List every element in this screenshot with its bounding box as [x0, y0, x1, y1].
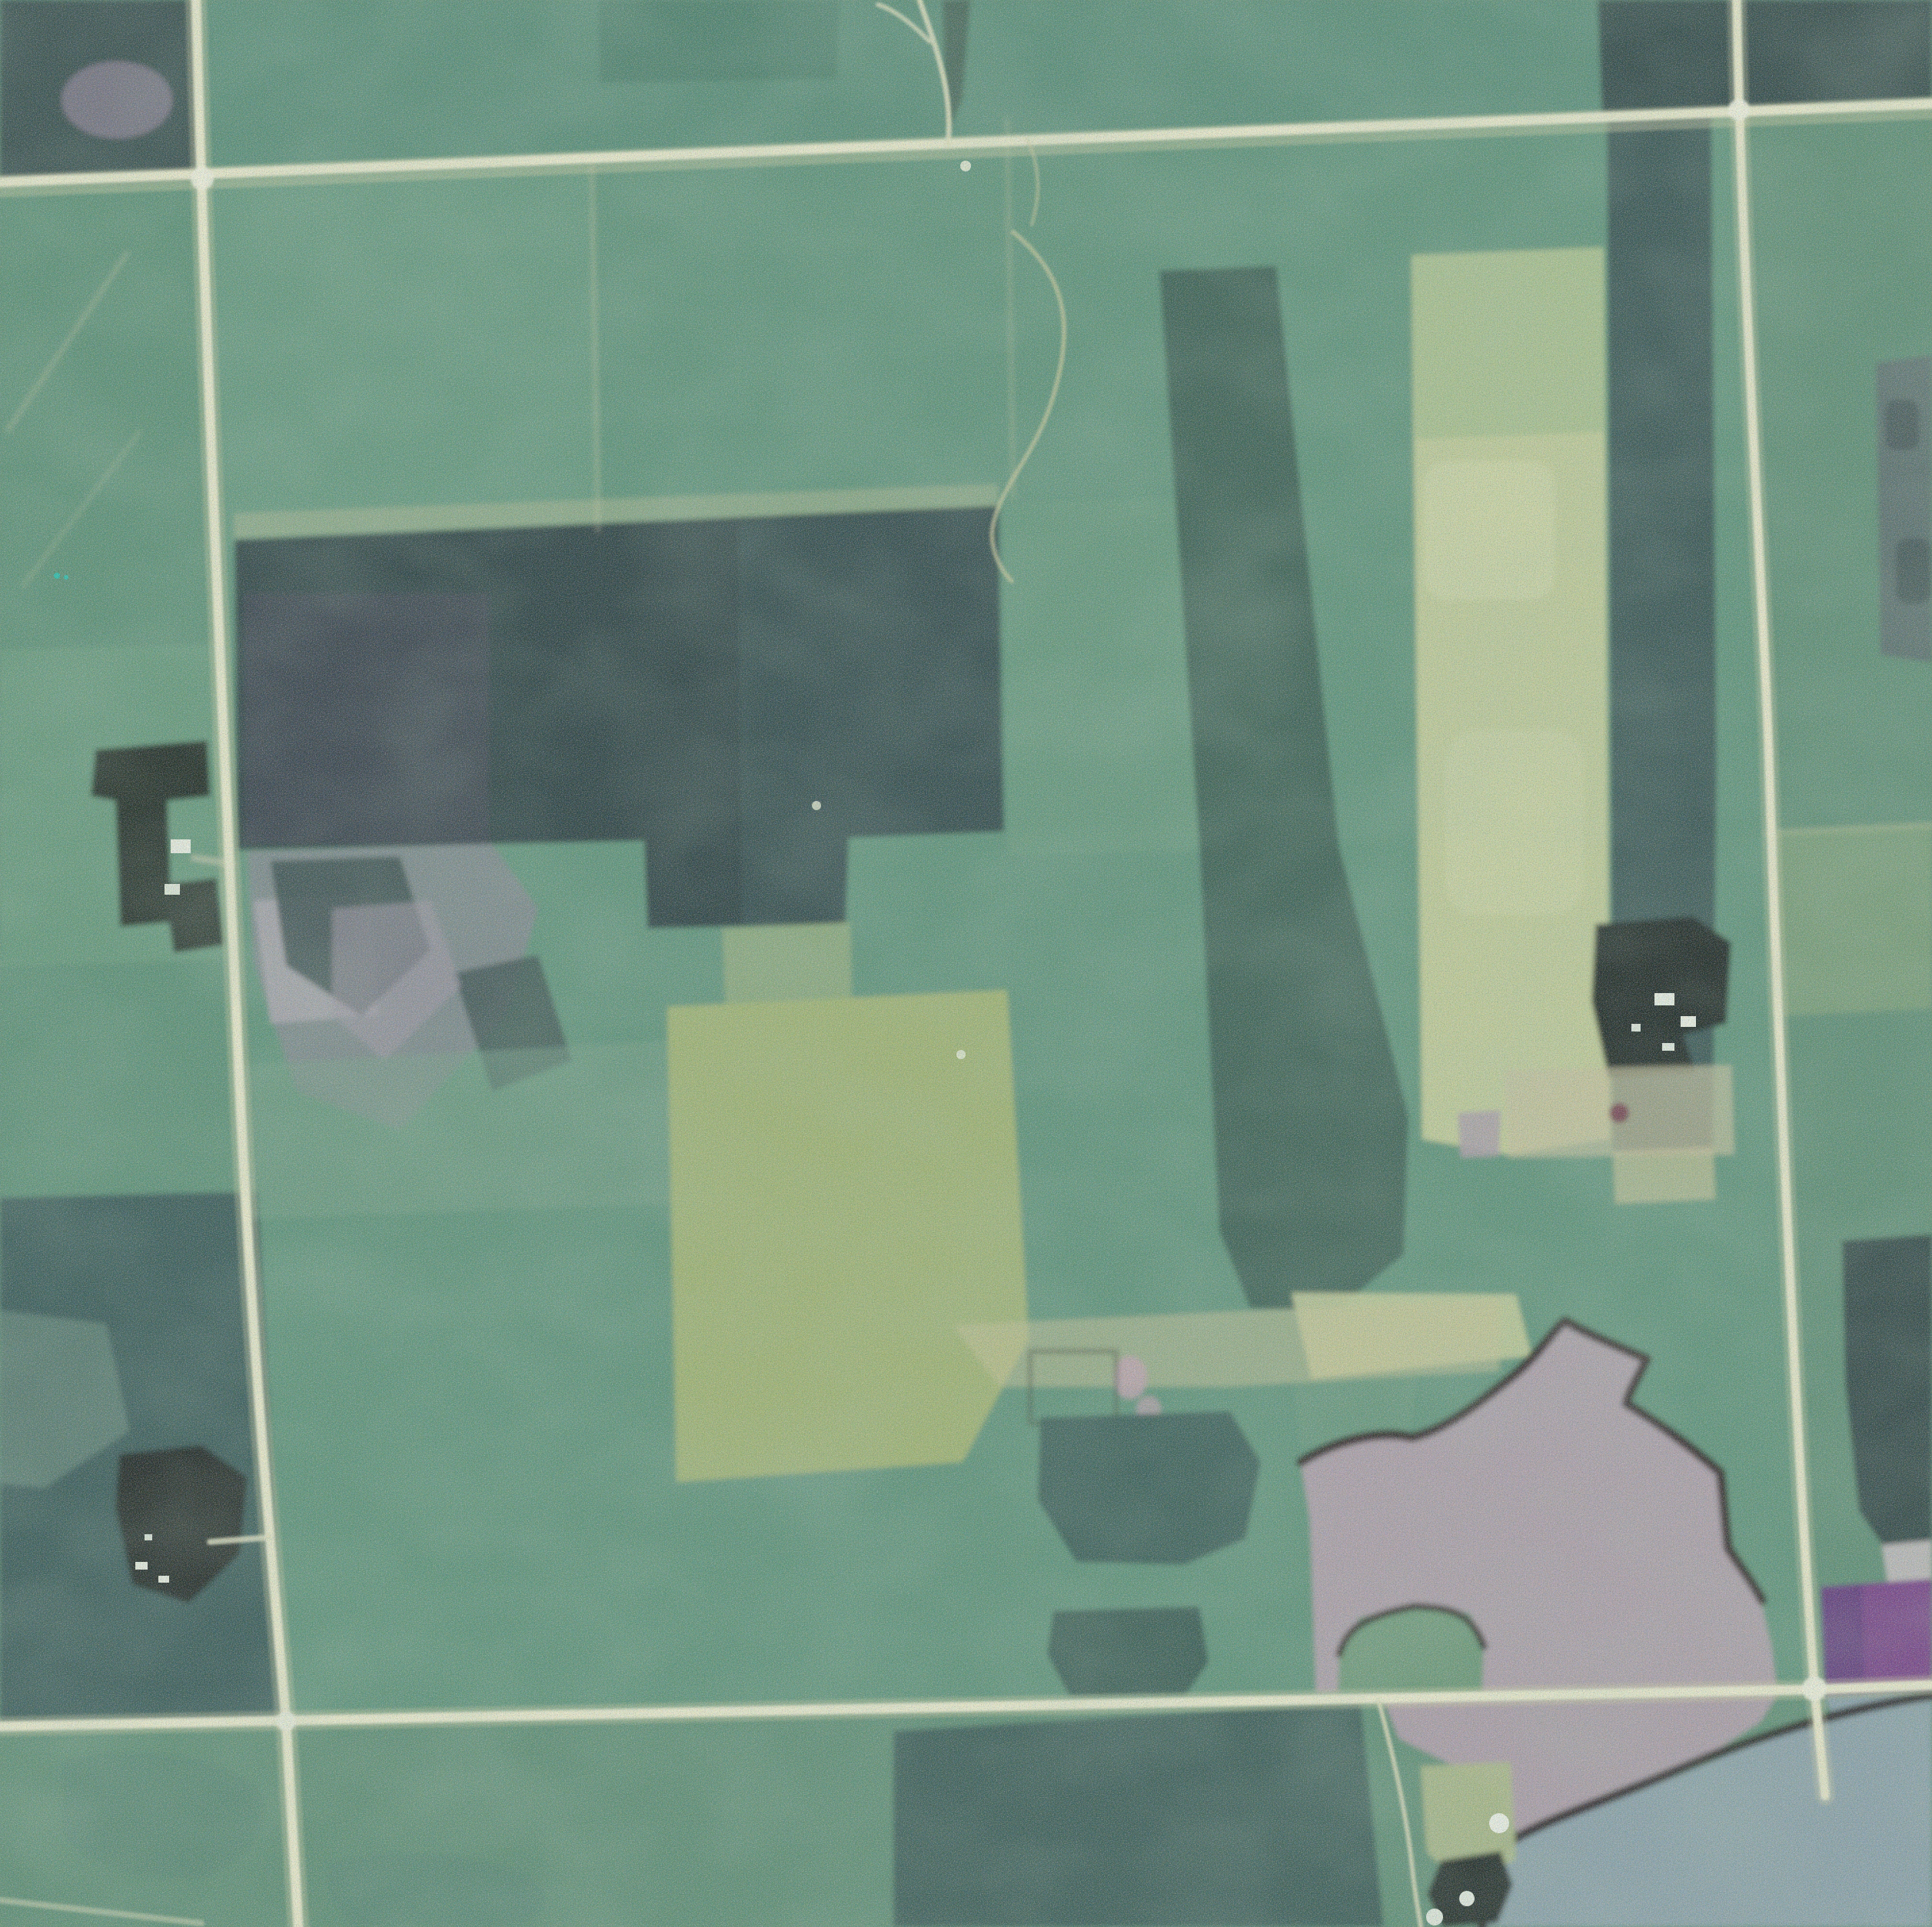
aerial-photo-stage	[0, 0, 1932, 1927]
film-grain-chroma	[0, 0, 1932, 1927]
aerial-photo	[0, 0, 1932, 1927]
